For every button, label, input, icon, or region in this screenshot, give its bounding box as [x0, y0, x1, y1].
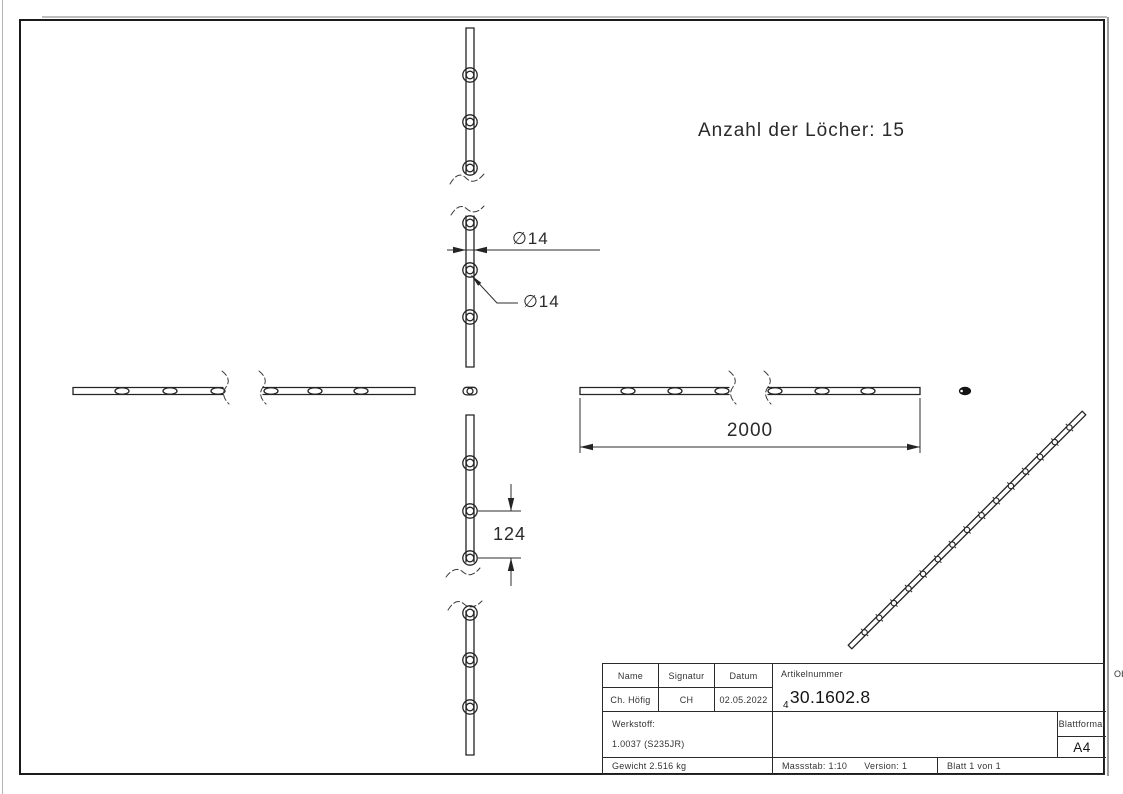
material-cell: Werkstoff: 1.0037 (S235JR): [603, 712, 773, 758]
article-number: 430.1602.8: [783, 687, 870, 708]
dim-length-label: 2000: [718, 420, 782, 442]
dim-hole-spacing-label: 124: [493, 524, 526, 545]
format-label-cell: Blattformat: [1058, 712, 1106, 737]
scale-cell: Massstab: 1:10 Version: 1: [773, 758, 938, 775]
weight-cell: Gewicht 2.516 kg: [603, 758, 773, 775]
signature-value-cell: CH: [659, 688, 715, 712]
front-view-lower: [446, 415, 482, 755]
article-cell: Artikelnummer 430.1602.8 Oberfläche:Roh: [773, 664, 1106, 712]
material-value: 1.0037 (S235JR): [612, 739, 685, 749]
end-view-outline: [463, 387, 477, 395]
date-value-cell: 02.05.2022: [715, 688, 773, 712]
dim-bar-width-label: ∅14: [512, 229, 549, 249]
date-label-cell: Datum: [715, 664, 773, 688]
hole-count-note: Anzahl der Löcher: 15: [698, 120, 905, 142]
material-label: Werkstoff:: [612, 719, 655, 729]
surface-finish: Oberfläche:Roh: [1114, 669, 1123, 679]
signature-label-cell: Signatur: [659, 664, 715, 688]
front-view-upper: [450, 28, 484, 367]
format-value-cell: A4: [1058, 737, 1106, 758]
article-label: Artikelnummer: [781, 669, 843, 679]
title-block: Name Signatur Datum Ch. Höfig CH 02.05.2…: [602, 663, 1105, 775]
version-value: Version: 1: [864, 761, 907, 771]
top-view-right: [580, 371, 920, 404]
empty-cell: [773, 712, 1058, 758]
side-view-left: [73, 371, 415, 404]
end-view-filled: [959, 387, 970, 394]
dim-hole-leader: [472, 276, 519, 304]
drawing-sheet: Anzahl der Löcher: 15 ∅14 ∅14 2000 124 N…: [0, 0, 1123, 794]
dim-hole-dia-label: ∅14: [523, 292, 560, 312]
name-value-cell: Ch. Höfig: [603, 688, 659, 712]
scale-value: Massstab: 1:10: [782, 761, 847, 771]
sheet-cell: Blatt 1 von 1: [938, 758, 1106, 775]
name-label-cell: Name: [603, 664, 659, 688]
